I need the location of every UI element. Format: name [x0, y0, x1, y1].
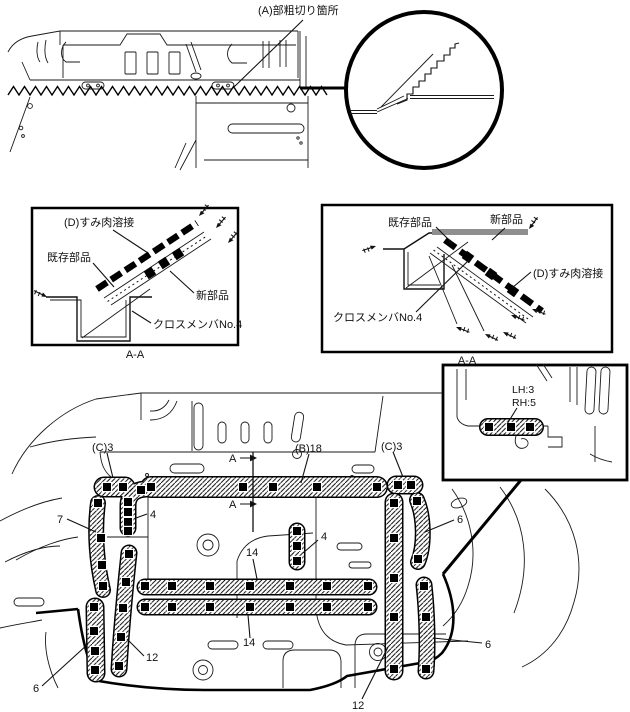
fillet-weld-label-left: (D)すみ肉溶接: [64, 215, 134, 229]
body-hole: [28, 104, 33, 109]
spot-weld-mark: [419, 581, 428, 590]
leader-4-left: [136, 514, 147, 518]
floor-slot: [208, 641, 238, 649]
callout-4-middle: 4: [321, 531, 327, 543]
spot-weld-mark: [285, 602, 294, 611]
floor-slot: [170, 464, 204, 473]
lh-rh-inset-box: LH:3 RH:5: [443, 364, 627, 574]
spot-weld-mark: [412, 496, 421, 505]
new-part-label-left: 新部品: [196, 288, 229, 302]
leader-14-lower: [248, 615, 250, 638]
cut-detail-circle-inset: [346, 12, 502, 168]
spot-weld-mark: [98, 581, 107, 590]
strip-hatch: [96, 500, 423, 590]
body-hole: [450, 496, 468, 510]
spot-weld-marks: [89, 480, 430, 674]
new-part-gray-bar: [432, 229, 528, 235]
section-detail-box-right: 既存部品 新部品 (D)すみ肉溶接 クロスメンバNo.4 A-A: [322, 205, 612, 367]
inset-rh-count: RH:5: [512, 397, 536, 409]
drain-washer: [193, 660, 213, 680]
crossmember-label-right: クロスメンバNo.4: [333, 311, 422, 324]
callout-4-left: 4: [150, 509, 156, 521]
spot-weld-mark: [245, 602, 254, 611]
inset-lh-count: LH:3: [512, 384, 534, 396]
leader-12-left: [127, 639, 144, 656]
rear-slot: [291, 412, 305, 443]
hole-mark: [146, 474, 149, 477]
floor-slot: [228, 124, 304, 133]
spot-weld-mark: [146, 482, 155, 491]
spot-weld-mark: [292, 541, 301, 550]
crossmember-label-left: クロスメンバNo.4: [153, 318, 242, 331]
drain-washer: [203, 540, 213, 550]
spot-weld-mark: [96, 533, 105, 542]
diagram-canvas: (A)部粗切り箇所 (D)すみ肉溶接 既存部品 新部品 クロスメンバNo.4 A…: [0, 0, 630, 712]
spot-weld-mark: [205, 602, 214, 611]
callout-6-right-upper: 6: [457, 514, 463, 526]
spot-weld-mark: [89, 626, 98, 635]
spot-weld-mark: [389, 498, 398, 507]
new-part-label-right: 新部品: [490, 212, 523, 226]
weld-strips: [95, 485, 427, 673]
floor-slot: [349, 562, 371, 568]
spot-weld-mark: [413, 554, 422, 563]
spot-weld-mark: [90, 665, 99, 674]
spot-weld-mark: [389, 664, 398, 673]
strip-white: [96, 500, 423, 590]
magnifier-circle: [346, 12, 502, 168]
body-hole: [19, 126, 23, 130]
spot-weld-mark: [389, 533, 398, 542]
spot-weld-mark: [525, 422, 534, 431]
cut-location-label: (A)部粗切り箇所: [258, 3, 339, 17]
existing-part-label-left: 既存部品: [47, 250, 91, 264]
spot-weld-mark: [90, 646, 99, 655]
spot-weld-mark: [389, 573, 398, 582]
floor-slot: [263, 641, 293, 649]
spot-weld-mark: [205, 581, 214, 590]
strip-outline: [96, 500, 423, 590]
section-marker-a-bottom: A: [229, 499, 237, 511]
spot-weld-mark: [167, 581, 176, 590]
floor-slot: [337, 543, 362, 550]
floor-slot: [352, 465, 374, 473]
spot-weld-mark: [118, 603, 127, 612]
body-hole: [22, 135, 25, 138]
rivet-dot: [97, 84, 100, 87]
rear-panel-top-view: (A)部粗切り箇所: [8, 3, 346, 170]
spot-weld-mark: [406, 480, 415, 489]
section-detail-box-left: (D)すみ肉溶接 既存部品 新部品 クロスメンバNo.4 A-A: [32, 204, 242, 361]
panel-hole: [191, 73, 201, 79]
spot-weld-mark: [285, 581, 294, 590]
spot-weld-mark: [421, 612, 430, 621]
spot-weld-mark: [123, 517, 132, 526]
vent-slot: [125, 52, 136, 74]
spot-weld-mark: [484, 422, 493, 431]
spot-weld-mark: [93, 498, 102, 507]
spot-weld-mark: [97, 560, 106, 569]
zigzag-cut-line: [8, 87, 327, 96]
spot-weld-mark: [421, 664, 430, 673]
section-aa-label-left: A-A: [126, 349, 145, 361]
spot-weld-mark: [322, 602, 331, 611]
spot-weld-mark: [238, 482, 247, 491]
rear-slot: [218, 422, 226, 443]
spot-weld-mark: [363, 581, 372, 590]
rivet-dot: [217, 84, 220, 87]
spot-weld-mark: [292, 526, 301, 535]
right-wheelhouse-curves: [443, 487, 579, 667]
spot-weld-mark: [118, 482, 127, 491]
spot-weld-mark: [140, 581, 149, 590]
spot-weld-mark: [140, 602, 149, 611]
spot-weld-mark: [363, 602, 372, 611]
spot-weld-mark: [123, 526, 132, 535]
spot-weld-mark: [124, 549, 133, 558]
drain-washer: [199, 666, 208, 675]
callout-14-lower: 14: [243, 637, 255, 649]
drain-washer: [374, 648, 382, 656]
fillet-weld-label-right: (D)すみ肉溶接: [533, 266, 603, 280]
drain-washer: [197, 534, 219, 556]
vent-slot: [169, 52, 180, 74]
rear-slot: [194, 403, 203, 450]
spot-weld-mark: [114, 661, 123, 670]
inset-pointer-line: [443, 480, 521, 574]
cut-location-leader: [234, 20, 303, 87]
spot-weld-mark: [268, 482, 277, 491]
spot-weld-mark: [372, 482, 381, 491]
rear-slot: [241, 422, 249, 443]
vent-slot: [147, 52, 158, 74]
body-repair-diagram-page: (A)部粗切り箇所 (D)すみ肉溶接 既存部品 新部品 クロスメンバNo.4 A…: [0, 0, 630, 712]
existing-part-label-right: 既存部品: [388, 215, 432, 229]
spot-weld-mark: [322, 581, 331, 590]
floor-slot: [14, 598, 44, 606]
spot-weld-mark: [167, 602, 176, 611]
spot-weld-mark: [102, 482, 111, 491]
drain-washer: [370, 644, 387, 661]
spot-weld-mark: [389, 612, 398, 621]
spot-weld-mark: [116, 632, 125, 641]
callout-7: 7: [57, 514, 63, 526]
spot-weld-mark: [123, 507, 132, 516]
section-marker-a-top: A: [229, 453, 237, 465]
spot-weld-mark: [312, 482, 321, 491]
body-hole: [287, 104, 295, 112]
body-hole: [300, 142, 302, 144]
leader-14-upper: [253, 559, 257, 579]
spot-weld-mark: [292, 556, 301, 565]
spot-count-c3-left-label: (C)3: [92, 442, 113, 454]
spot-weld-mark: [136, 485, 145, 494]
spot-weld-mark: [121, 577, 130, 586]
spot-count-c3-right-label: (C)3: [381, 441, 402, 453]
callout-12-right: 12: [352, 700, 364, 712]
spot-count-b18-label: (B)18: [295, 443, 322, 455]
body-hole: [297, 137, 299, 139]
spot-weld-mark: [89, 602, 98, 611]
rivet-dot: [227, 84, 230, 87]
leader-c3-right: [393, 452, 403, 477]
rear-panel-outline: [8, 31, 306, 88]
callout-12-left: 12: [146, 652, 158, 664]
rivet-dot: [87, 84, 90, 87]
callout-14-upper: 14: [246, 547, 258, 559]
callout-6-right-lower: 6: [485, 639, 491, 651]
spot-weld-mark: [245, 581, 254, 590]
spot-weld-mark: [393, 480, 402, 489]
rear-slot: [264, 422, 272, 443]
callout-6-bottom-left: 6: [33, 683, 39, 695]
spot-weld-mark: [123, 497, 132, 506]
